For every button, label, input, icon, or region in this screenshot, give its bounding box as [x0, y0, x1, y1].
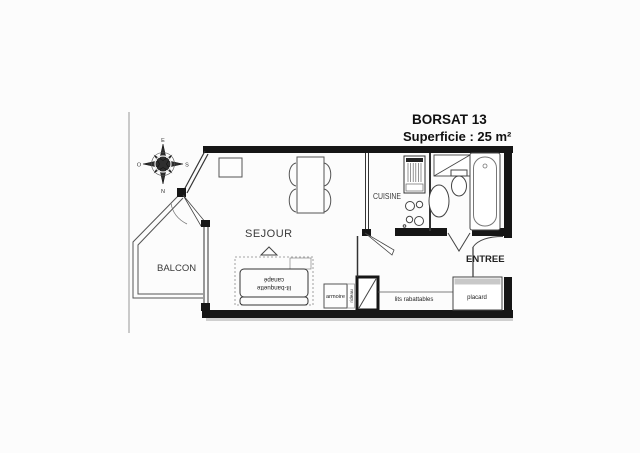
kitchen-wall-cap: [362, 229, 371, 236]
placard-label: placard: [467, 295, 487, 301]
column: [357, 277, 378, 310]
armoire-label: armoire: [326, 294, 345, 300]
fridge-unit: [404, 156, 425, 193]
label-sejour: SEJOUR: [245, 228, 293, 240]
fold-beds-label: lits rabattables: [395, 297, 434, 303]
floorplan-svg: BORSAT 13 Superficie : 25 m² E S N O: [0, 0, 640, 453]
floorplan-page: BORSAT 13 Superficie : 25 m² E S N O: [0, 0, 640, 453]
tv-cabinet: [219, 158, 242, 177]
sofa-label-line1: canapé: [263, 276, 284, 283]
washbasin: [429, 185, 449, 217]
plan-title: BORSAT 13: [412, 112, 487, 127]
balcony-door-swing: [171, 203, 187, 224]
placard: placard: [453, 277, 502, 310]
window-wall-cap-top: [201, 220, 210, 227]
balcony-glazing: [184, 151, 208, 193]
compass-rose: E S N O: [137, 138, 189, 195]
compass-letter-right: S: [185, 163, 189, 169]
label-balcon: BALCON: [157, 263, 196, 274]
kitchen-west-wall: [366, 153, 369, 229]
kitchen-door-leaf: [365, 233, 394, 255]
label-entree: ENTREE: [466, 254, 505, 265]
fold-arrow: [261, 247, 277, 255]
label-cuisine: CUISINE: [373, 192, 401, 201]
window-wall: [204, 224, 208, 306]
wall-shadow: [206, 318, 513, 321]
compass-letter-left: O: [137, 163, 142, 169]
plan-surface: Superficie : 25 m²: [403, 129, 512, 144]
glazing-post: [177, 188, 186, 197]
dining-table-set: [289, 157, 331, 213]
toilet: [451, 170, 467, 196]
south-wall-a: [395, 228, 447, 236]
compass-letter-top: E: [161, 138, 165, 144]
compass-letter-bottom: N: [161, 189, 165, 195]
window-wall-cap-bottom: [201, 303, 210, 311]
bathroom-door: [448, 233, 470, 251]
rideau-label: rideau: [349, 289, 355, 303]
sofa-bed: canapé lit-banquette: [235, 247, 313, 305]
sofa-label-line2: lit-banquette: [256, 284, 291, 291]
bathtub: [470, 153, 500, 230]
hob-burners: [403, 201, 423, 227]
